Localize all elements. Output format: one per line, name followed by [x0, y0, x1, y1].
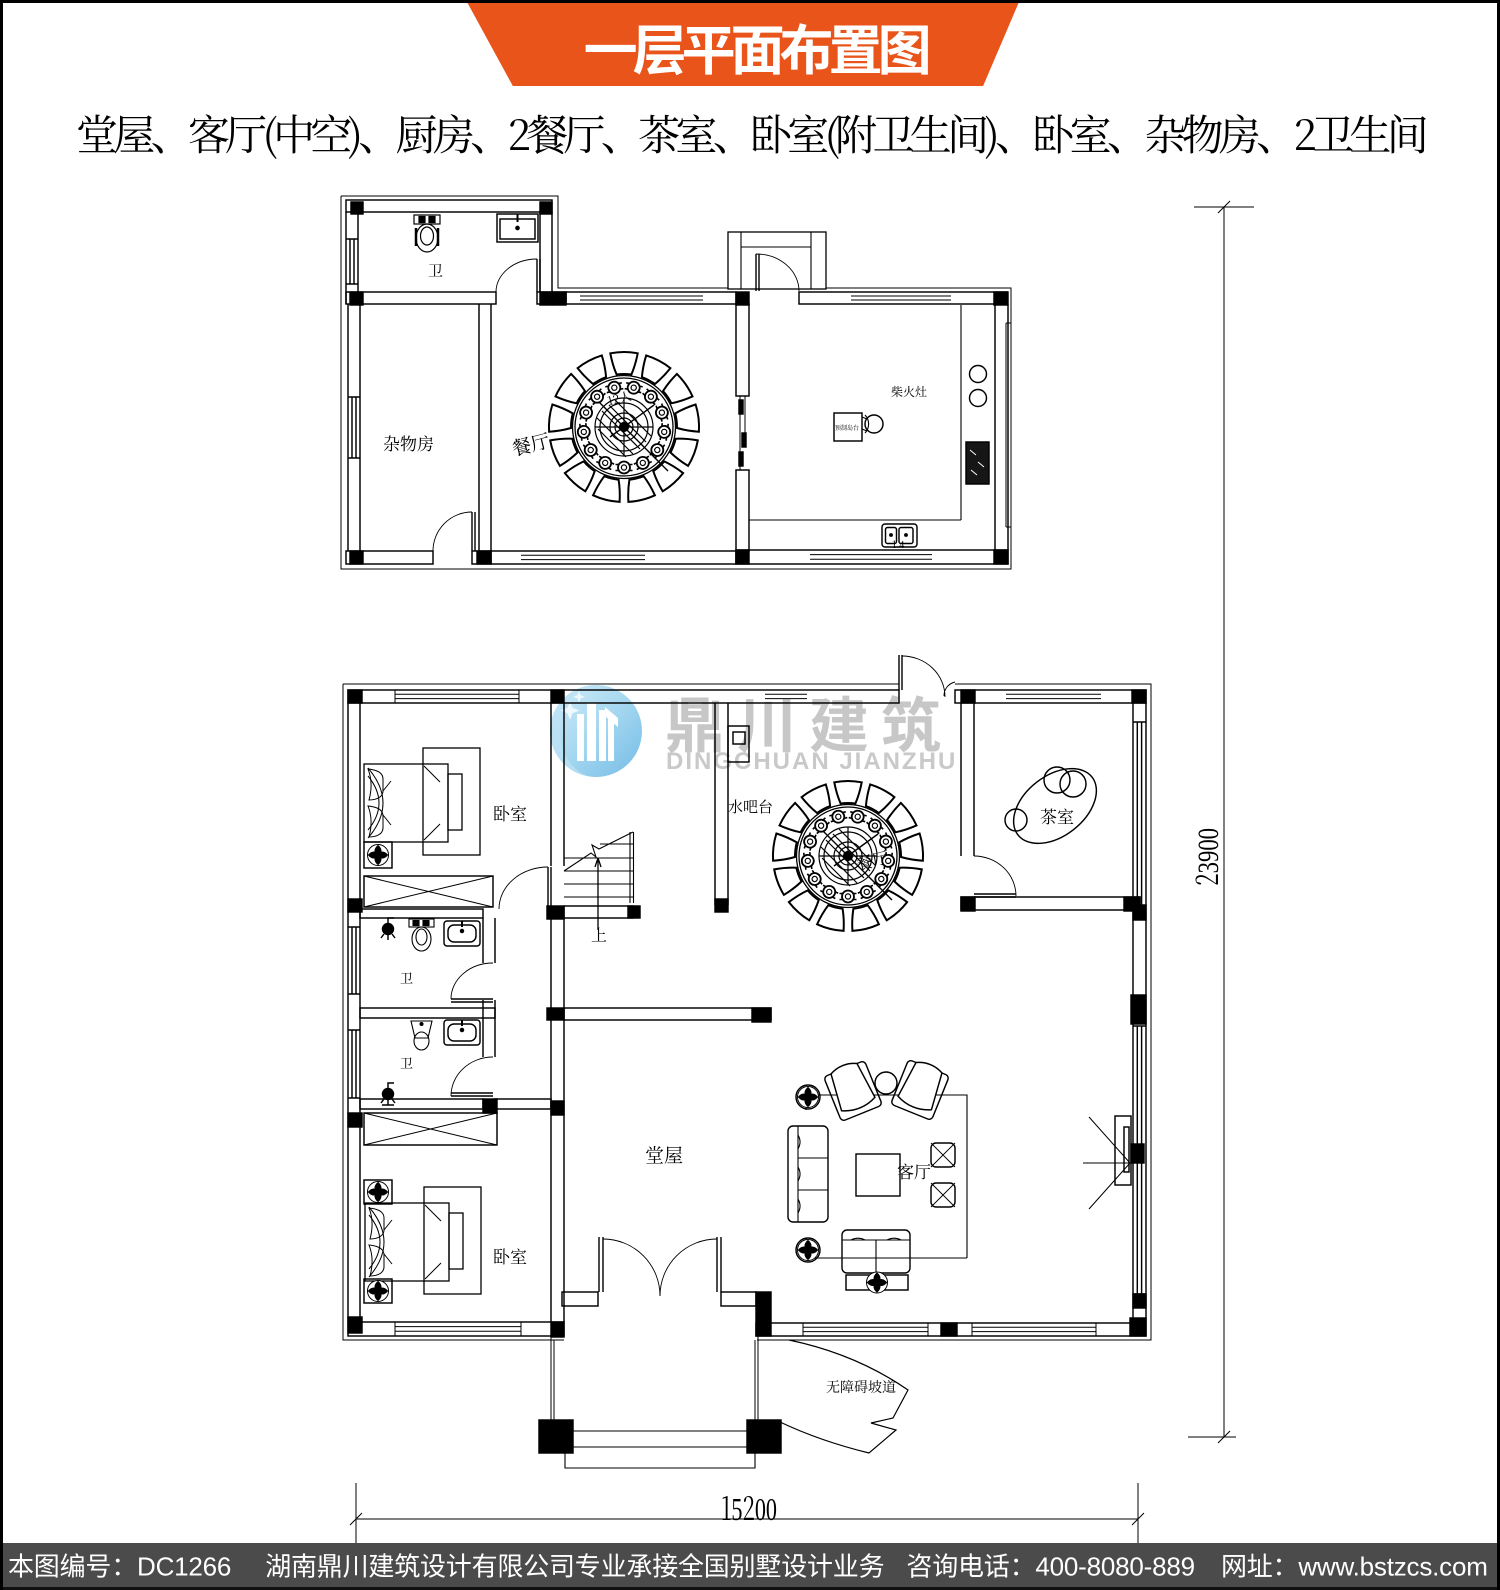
- svg-text:卫: 卫: [428, 260, 443, 281]
- svg-text:卫: 卫: [400, 1053, 413, 1072]
- svg-text:预制岛台: 预制岛台: [835, 423, 859, 432]
- svg-text:茶室: 茶室: [1040, 803, 1074, 828]
- svg-text:卧室: 卧室: [493, 800, 527, 825]
- svg-text:水吧台: 水吧台: [728, 796, 773, 817]
- svg-text:上: 上: [591, 923, 607, 946]
- svg-text:餐厅: 餐厅: [509, 426, 552, 461]
- svg-text:无障碍坡道: 无障碍坡道: [826, 1377, 896, 1397]
- svg-text:柴火灶: 柴火灶: [891, 383, 927, 400]
- svg-text:15200: 15200: [721, 1484, 777, 1530]
- svg-text:堂屋: 堂屋: [645, 1141, 683, 1168]
- svg-text:卫: 卫: [400, 968, 413, 987]
- svg-text:杂物房: 杂物房: [383, 430, 434, 455]
- svg-text:1.4: 1.4: [892, 536, 904, 551]
- svg-text:客厅: 客厅: [897, 1158, 931, 1183]
- svg-text:23900: 23900: [1183, 828, 1227, 886]
- svg-text:卧室: 卧室: [493, 1243, 527, 1268]
